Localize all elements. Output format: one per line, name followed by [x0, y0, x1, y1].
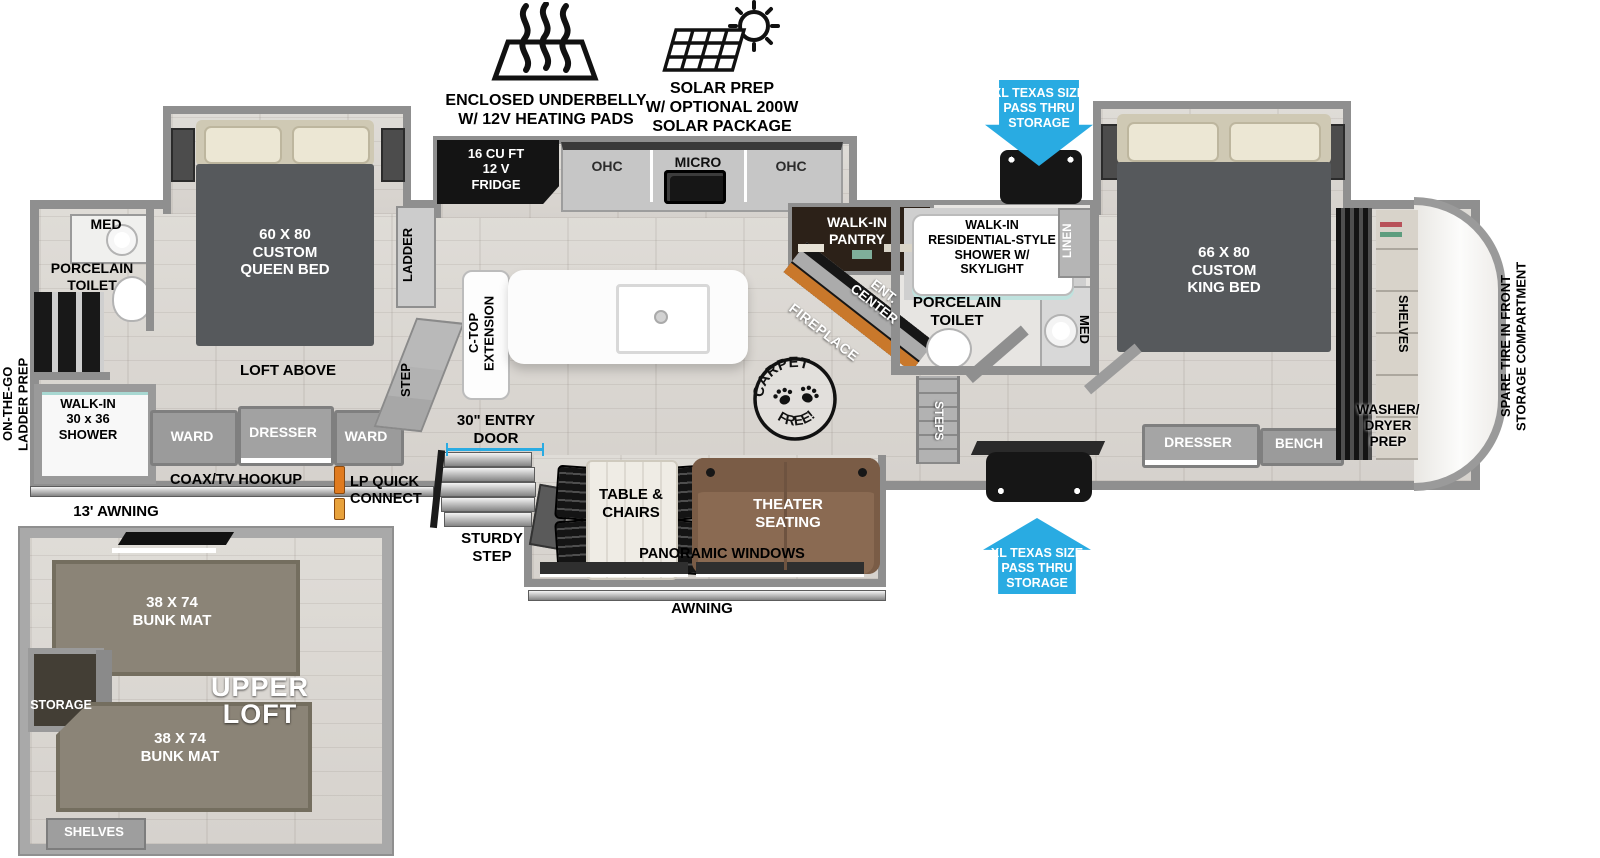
front-shelf-item-2 — [1380, 232, 1402, 237]
front-shelf-item-1 — [1380, 222, 1402, 227]
front-shelves-label: SHELVES — [1388, 276, 1410, 372]
awning-13-label: 13' AWNING — [58, 503, 174, 521]
entry-stair-1 — [444, 452, 532, 467]
theater-seating-label: THEATER SEATING — [736, 496, 840, 531]
awning-label: AWNING — [646, 600, 758, 618]
pass-thru-door-bottom — [986, 452, 1092, 502]
rear-med-label: MED — [76, 216, 136, 233]
entry-door-measure-line — [446, 448, 544, 451]
pantry-shelf-item-2 — [852, 250, 872, 259]
queen-bed-label: 60 X 80 CUSTOM QUEEN BED — [200, 226, 370, 279]
ladder-prep-label: ON-THE-GO LADDER PREP — [0, 328, 38, 480]
lp-connector-icon — [334, 466, 345, 494]
center-shower-label: WALK-IN RESIDENTIAL-STYLE SHOWER W/ SKYL… — [912, 218, 1072, 277]
kitchen-counter-divider-1 — [650, 150, 653, 202]
ward-left-label: WARD — [154, 428, 230, 445]
theater-cupholder-right — [858, 468, 867, 477]
upper-loft-title: UPPER LOFT — [190, 674, 330, 728]
spare-tire-label: SPARE TIRE IN FRONT STORAGE COMPARTMENT — [1498, 236, 1538, 456]
panoramic-window-right — [696, 562, 864, 577]
queen-bed-pillow-left — [204, 126, 282, 164]
rear-shower-label: WALK-IN 30 x 36 SHOWER — [40, 396, 136, 442]
bedroom-step-label: STEP — [398, 348, 424, 412]
rear-bath-wall — [32, 372, 110, 380]
loft-above-label: LOFT ABOVE — [230, 362, 346, 380]
king-bed-label: 66 X 80 CUSTOM KING BED — [1138, 244, 1310, 297]
linen-label: LINEN — [1062, 212, 1090, 270]
theater-cupholder-left — [706, 468, 715, 477]
entry-stair-3 — [438, 482, 536, 497]
loft-storage-label: STORAGE — [24, 698, 98, 713]
king-bed-pillow-right — [1229, 122, 1321, 162]
entry-stair-5 — [444, 512, 532, 527]
washer-dryer-label: WASHER/ DRYER PREP — [1342, 402, 1434, 450]
pass-thru-top-label: XL TEXAS SIZE PASS THRU STORAGE — [987, 86, 1091, 130]
center-toilet — [926, 328, 972, 370]
queen-slide-window-right — [381, 128, 405, 182]
carpet-free-stamp: CARPET FREE! — [750, 354, 840, 444]
solar-prep-label: SOLAR PREP W/ OPTIONAL 200W SOLAR PACKAG… — [618, 80, 826, 137]
entry-stair-2 — [441, 467, 535, 482]
micro-label: MICRO — [660, 154, 736, 171]
lp-connector-icon-lower — [334, 498, 345, 520]
loft-vent-trim — [112, 548, 216, 553]
loft-vent — [118, 532, 234, 545]
panoramic-windows-label: PANORAMIC WINDOWS — [606, 546, 838, 563]
center-toilet-label: PORCELAIN TOILET — [898, 294, 1016, 329]
center-med-label: MED — [1072, 298, 1092, 360]
rear-toilet-label: PORCELAIN TOILET — [36, 260, 148, 293]
ohc-left-label: OHC — [572, 158, 642, 175]
island-sink-drain — [654, 310, 668, 324]
ohc-right-label: OHC — [756, 158, 826, 175]
kitchen-counter-divider-2 — [744, 150, 747, 202]
table-chairs-label: TABLE & CHAIRS — [560, 486, 702, 521]
entry-door-measure-tick-right — [542, 443, 544, 456]
entry-door-measure-tick-left — [446, 443, 448, 456]
queen-slide-window-left — [171, 128, 195, 182]
entry-door-label: 30" ENTRY DOOR — [442, 412, 550, 447]
loft-bunk-top-label: 38 X 74 BUNK MAT — [96, 594, 248, 629]
pass-thru-bottom-label: XL TEXAS SIZE PASS THRU STORAGE — [987, 546, 1087, 590]
center-bath-wall-bottom — [891, 366, 1099, 375]
bedroom-ladder-label: LADDER — [400, 212, 430, 298]
floorplan-canvas: ENCLOSED UNDERBELLY W/ 12V HEATING PADS … — [0, 0, 1600, 858]
lp-quick-connect-label: LP QUICK CONNECT — [350, 474, 444, 508]
coax-label: COAX/TV HOOKUP — [158, 472, 314, 489]
panoramic-window-left — [540, 562, 688, 577]
entry-stair-4 — [441, 497, 535, 512]
queen-bed-pillow-right — [292, 126, 370, 164]
loft-bunk-bottom-label: 38 X 74 BUNK MAT — [104, 730, 256, 765]
sturdy-step-label: STURDY STEP — [444, 530, 540, 565]
master-dresser-label: DRESSER — [1146, 434, 1250, 451]
enclosed-underbelly-icon — [468, 2, 622, 92]
master-bench-label: BENCH — [1262, 436, 1336, 452]
ward-right-label: WARD — [334, 428, 398, 445]
walkin-pantry-label: WALK-IN PANTRY — [798, 214, 916, 247]
loft-shelves-label: SHELVES — [50, 824, 138, 839]
rear-wardrobe-slats — [34, 292, 104, 372]
bedroom-dresser-label: DRESSER — [240, 424, 326, 441]
bath-steps-label: STEPS — [924, 386, 946, 456]
refrigerator-label: 16 CU FT 12 V FRIDGE — [441, 146, 551, 192]
king-bed-pillow-left — [1127, 122, 1219, 162]
solar-prep-icon — [662, 0, 782, 82]
microwave — [664, 170, 726, 204]
ctop-extension-label: C-TOP EXTENSION — [466, 276, 502, 390]
